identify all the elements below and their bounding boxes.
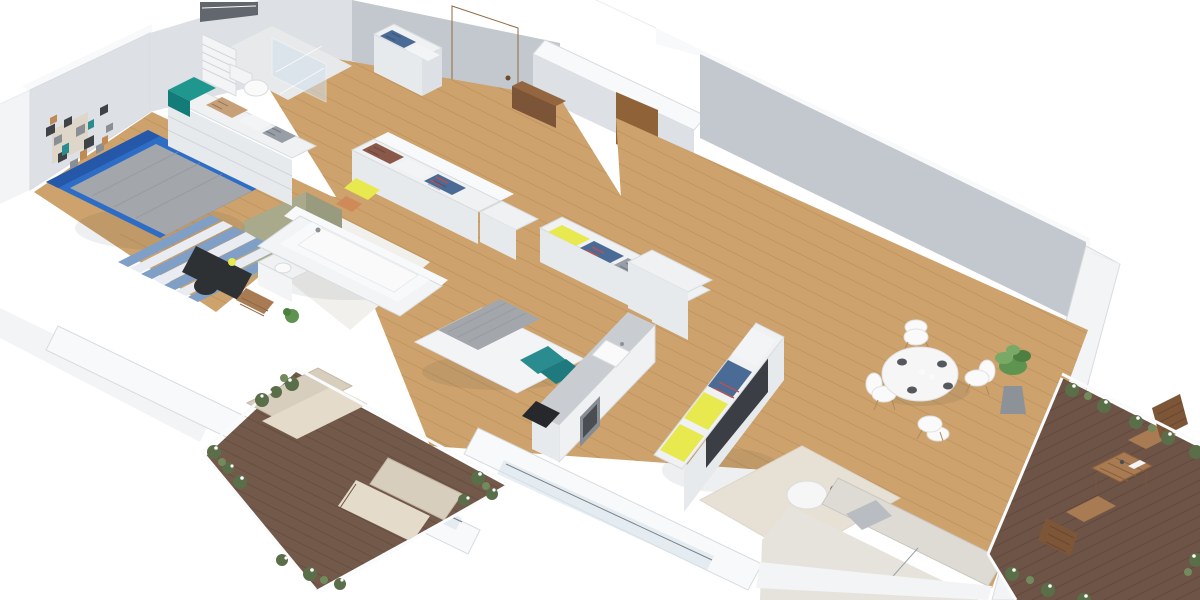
tub-faucet xyxy=(316,228,321,233)
bathroom2-plant-leaf xyxy=(283,308,291,316)
floor-plan-render xyxy=(0,0,1200,600)
desk-chair xyxy=(194,277,218,295)
door-knob xyxy=(506,76,511,81)
floor-plan-svg xyxy=(0,0,1200,600)
coffee-table xyxy=(787,481,827,509)
toilet-bowl xyxy=(244,80,268,96)
desk-lamp-yellow xyxy=(228,258,236,266)
kitchen-faucet xyxy=(620,342,624,346)
table-cup-2 xyxy=(929,374,935,380)
vanity-basin xyxy=(275,263,291,273)
exterior-left-wall xyxy=(0,90,30,204)
table-cup xyxy=(919,369,925,375)
